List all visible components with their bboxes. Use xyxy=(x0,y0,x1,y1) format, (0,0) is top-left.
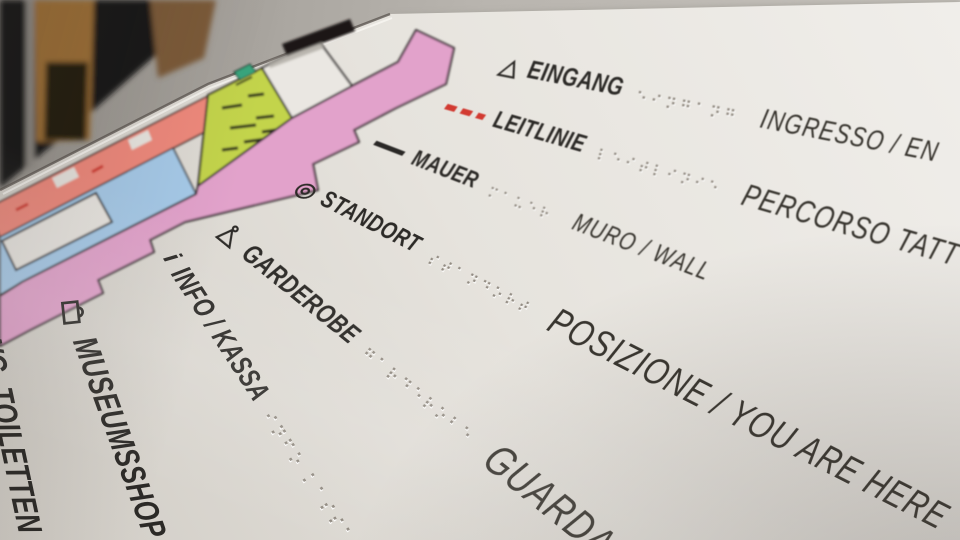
metal-pole xyxy=(26,0,34,168)
wall-line-icon xyxy=(374,140,404,156)
guide-line-icon xyxy=(445,103,485,119)
wood-door-opening xyxy=(44,62,88,140)
shopping-bag-icon xyxy=(53,292,95,334)
photo-of-tactile-map-panel: △ EINGANG ⠑⠊⠝⠛⠁⠝⠛ INGRESSO / EN LEITLINI… xyxy=(0,0,960,540)
entrance-triangle-icon: △ xyxy=(498,53,520,79)
